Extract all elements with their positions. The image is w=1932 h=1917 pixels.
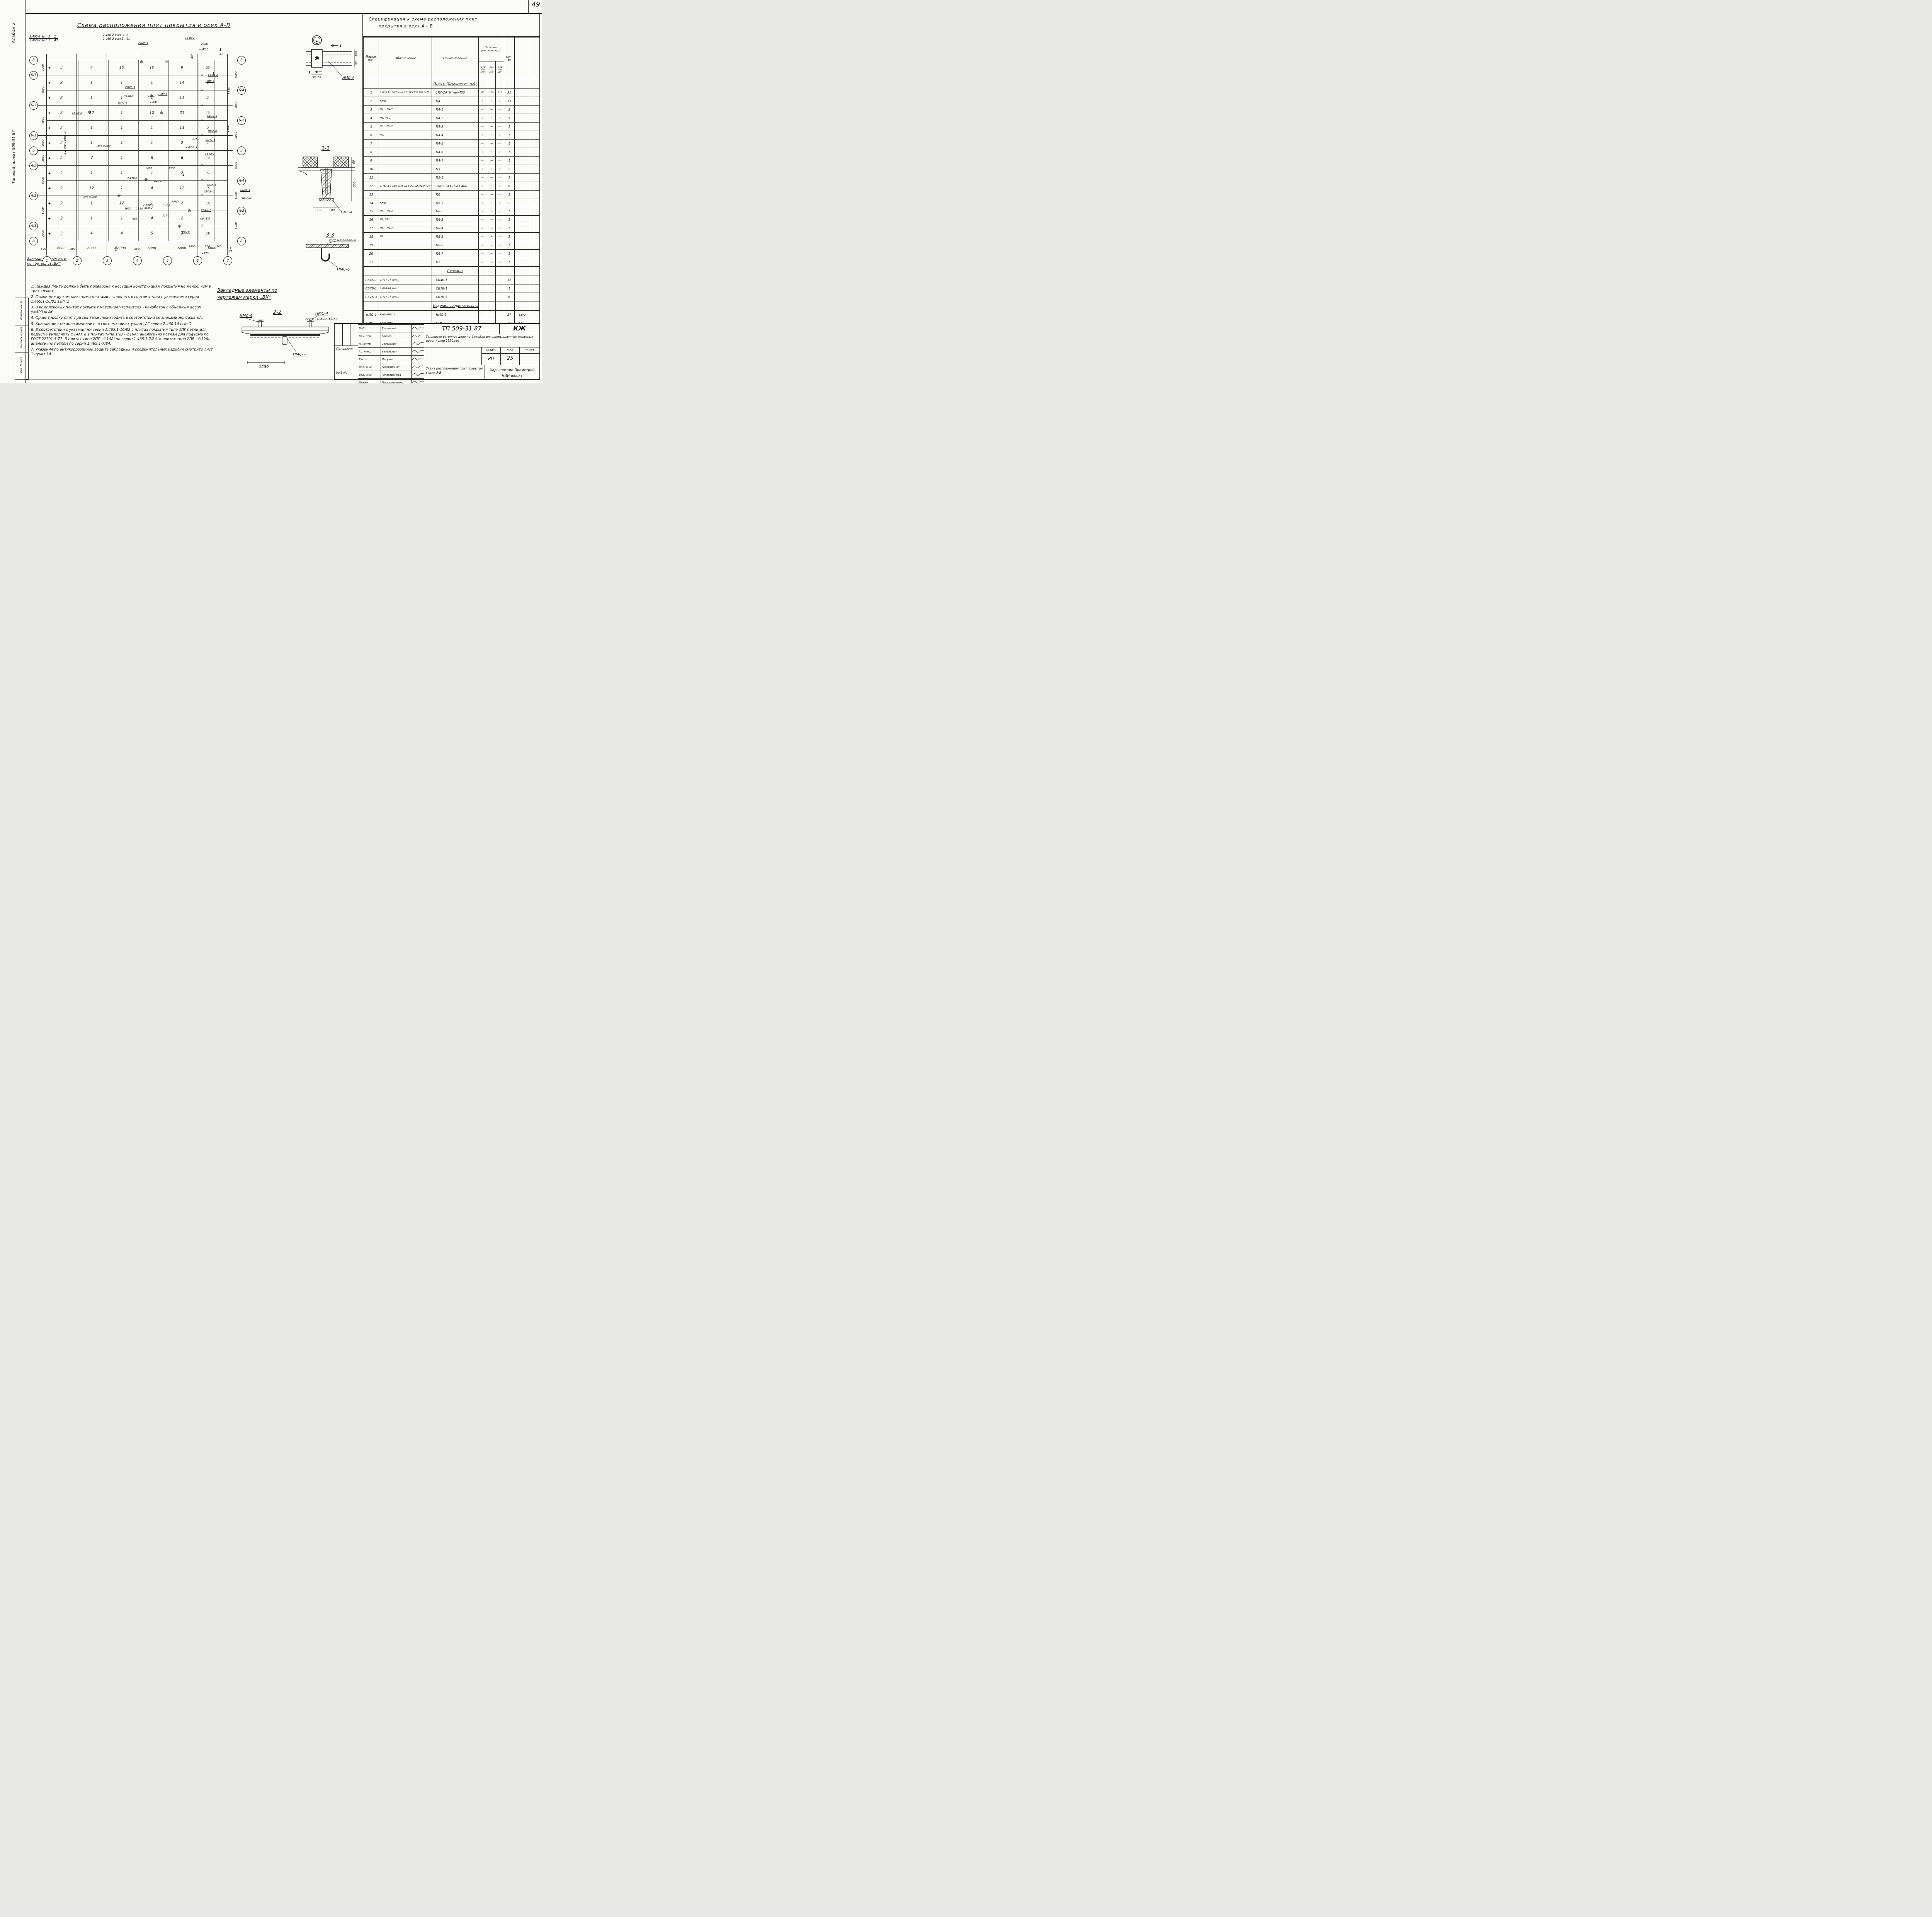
spec-mass: [514, 173, 530, 182]
spec-mark: 1: [364, 89, 379, 97]
svg-text:2-2: 2-2: [273, 309, 282, 315]
detail-3-3-drawing: 3-3 ГОСТ 14098-85-Н1-Δ8 НМС-6: [304, 230, 362, 277]
spec-qty: 1: [504, 284, 514, 293]
blueprint-sheet: 49 Альбом 2 Типовой проект 509-31.87 Вза…: [0, 0, 542, 383]
spec-spare: [530, 122, 540, 131]
spec-mark: 5: [364, 122, 379, 131]
plan-axis-hline: [38, 226, 233, 226]
plan-callout-НМС-9: НМС-9: [242, 197, 251, 200]
svg-text:100: 100: [355, 60, 358, 66]
plan-callout-2460-2: 2.460-2: [143, 203, 153, 206]
embed-plate-icon: ▫: [201, 118, 203, 122]
spec-t30: -»-: [487, 97, 496, 106]
plan-callout-1200: 1200: [168, 167, 175, 170]
plate-number: 1: [151, 171, 153, 175]
plate-number: 2: [207, 126, 209, 129]
plan-callout-НМС-4: НМС-4: [206, 138, 215, 141]
spec-mass: [514, 89, 530, 97]
plate-number: 2: [60, 201, 63, 205]
spec-mark: 6: [364, 131, 379, 139]
spec-mark: 4: [364, 114, 379, 123]
spec-mark: [364, 79, 379, 89]
axis-bubble-left: А: [29, 237, 38, 245]
spec-name: П4-5: [432, 139, 479, 148]
spec-row: 3П4 ÷ П4-7,П4-1-»--»--»-2: [364, 106, 540, 114]
plan-callout-1: 1: [219, 48, 222, 51]
plan-callout-2600: 2600: [226, 125, 230, 132]
svg-text:50: 50: [312, 76, 316, 79]
spec-header-thickness: Толщина утеплителя „δ“: [478, 37, 504, 61]
plate-number: 12: [150, 111, 155, 115]
svg-text:1: 1: [316, 38, 318, 43]
spec-t20: -»-: [478, 216, 487, 224]
sheet-title: Схема расположения плит покрытия в осях …: [424, 365, 485, 379]
stage-value: РП: [482, 354, 501, 365]
spec-t40: -»-: [496, 156, 504, 165]
plate-number: 1: [90, 126, 93, 130]
spec-spare: [530, 311, 540, 319]
plate-number: 2: [60, 156, 63, 160]
svg-text:НМС-4: НМС-4: [342, 76, 354, 80]
spec-mark: 21: [364, 258, 379, 267]
axis-bubble-bottom: 7: [223, 256, 232, 265]
spec-row: СБ4Б-11.494-24 вып.1СБ4Б-112: [364, 276, 540, 284]
plate-number: 13: [180, 126, 185, 130]
spec-t40: -»-: [496, 131, 504, 139]
roof-plan: Схема расположения плит покрытия в осях …: [27, 15, 259, 283]
plate-number: 1: [90, 141, 93, 145]
spec-t30: -»-: [487, 233, 496, 241]
signature-name: Радько: [381, 332, 412, 340]
spec-mass: [514, 241, 530, 250]
spec-mass: [514, 207, 530, 216]
spec-spare: [530, 301, 540, 311]
spec-name: СБ4Б-1: [432, 276, 479, 284]
svg-text:1: 1: [308, 71, 311, 75]
mounting-mark-icon: ◈: [48, 216, 51, 220]
plan-callout-вып2: вып 2: [145, 206, 153, 209]
spec-designation: 1.494-24 вып.1: [379, 276, 432, 284]
mounting-mark-icon: ◈: [48, 186, 51, 190]
axis-bubble-bottom: 1: [43, 256, 51, 265]
spec-t40: -»-: [496, 207, 504, 216]
spec-title-line1: Спецификация к схеме расположения плит: [369, 16, 538, 23]
spec-t30: -»-: [487, 114, 496, 123]
spec-name: 1ПВ7-3АтVт-ал-400: [432, 182, 479, 190]
axis-bubble-bottom: 4: [133, 256, 142, 265]
plan-axis-hline: [38, 196, 233, 196]
plan-right-dim: 6000: [235, 102, 238, 109]
series-text: 2.460-2 вып 2: [29, 35, 50, 38]
spec-t20: [478, 284, 487, 293]
spec-t30: -»-: [487, 122, 496, 131]
plan-callout-2700: 2700: [201, 43, 208, 46]
spec-qty: 1: [504, 190, 514, 199]
spec-mass: [514, 106, 530, 114]
plate-number: 1: [121, 141, 123, 145]
spec-t30: 100: [487, 89, 496, 97]
signature-row: ГИПТуринский: [358, 325, 424, 332]
spec-name: П4-2: [432, 114, 479, 123]
plan-axis-ext: [107, 241, 107, 255]
signature-icon: [412, 372, 424, 377]
spec-header-name: Наименование: [432, 37, 479, 79]
spec-mass: [514, 250, 530, 258]
plan-bottom-dim: 6000: [87, 247, 96, 250]
plate-number: 11: [180, 95, 185, 100]
spec-t20: -»-: [478, 97, 487, 106]
signature-name: Зеленский: [381, 348, 412, 355]
svg-text:1250: 1250: [259, 365, 269, 369]
spec-t40: -»-: [496, 114, 504, 123]
plan-callout-2150: 2150: [192, 138, 199, 141]
axis-bubble-bottom: 6: [193, 256, 202, 265]
titleblock-signatures: ГИПТуринскийНач. отдРадькоН. контрЗеленс…: [358, 324, 424, 379]
spec-qty: [504, 79, 514, 89]
plate-number: 2: [207, 96, 209, 99]
plate-number: 12: [180, 186, 185, 190]
spec-qty: 1: [504, 233, 514, 241]
spec-row: 18П7П6-5-»--»--»-1: [364, 233, 540, 241]
plate-number: 10: [119, 65, 124, 70]
spec-section-row: Стаканы: [364, 267, 540, 276]
axis-bubble-left: А/1: [29, 222, 38, 230]
spec-name: П7: [432, 258, 479, 267]
plan-axis-hline: [38, 135, 233, 136]
embed-plate-icon: ▫: [201, 163, 203, 167]
plan-callout-1430: 1430: [145, 167, 152, 170]
spec-mark: [364, 301, 379, 311]
spec-spare: [530, 131, 540, 139]
plate-number: 4: [151, 186, 153, 190]
spec-t20: [478, 311, 487, 319]
sheet-label: Лист: [501, 347, 520, 353]
spec-t20: -»-: [478, 199, 487, 207]
spec-t30: -»-: [487, 131, 496, 139]
spec-t40: 120: [496, 89, 504, 97]
spec-qty: [504, 301, 514, 311]
svg-text:100: 100: [317, 208, 323, 212]
plate-number: 2: [60, 95, 63, 100]
spec-t30: -»-: [487, 258, 496, 267]
signature-scribble: [412, 332, 424, 340]
plate-number: 3: [60, 65, 63, 70]
spec-qty: 1: [504, 241, 514, 250]
spec-t40: -»-: [496, 233, 504, 241]
mounting-mark-icon: ◈: [48, 232, 51, 235]
svg-text:НМС-4: НМС-4: [240, 314, 252, 318]
plan-left-dim: 6000: [41, 117, 44, 124]
embed-plate-icon: ▫: [201, 73, 203, 77]
detail-1-1-drawing: 1-1 60 300 100 100 НМС-4: [298, 145, 361, 215]
plate-number: 10: [150, 65, 155, 70]
sheet-value: 25: [501, 354, 520, 365]
plan-right-dim: 6000: [235, 132, 238, 139]
spec-qty: 2: [504, 199, 514, 207]
embed-plate-icon: ▫: [201, 133, 203, 137]
spec-t40: [496, 284, 504, 293]
plan-callout-НМС-4: НМС-4: [172, 200, 180, 203]
spec-spare: [530, 207, 540, 216]
spec-qty: 1: [504, 224, 514, 233]
spec-designation: П6 ÷ П6-7,: [379, 224, 432, 233]
axis-bubble-bottom: 5: [163, 256, 172, 265]
plan-left-dim: 3000: [41, 155, 44, 162]
spec-row: 9П4-7-»--»--»-1: [364, 156, 540, 165]
plan-callout-СБ4Б-1: СБ4Б-1: [240, 189, 250, 192]
spec-t30: [487, 284, 496, 293]
stage-label: Стадия: [482, 347, 501, 353]
fraction: 241: [114, 246, 118, 252]
spec-t40: -»-: [496, 241, 504, 250]
spec-header-mark: Марка, поз.: [364, 37, 379, 79]
plate-number: 1: [151, 126, 153, 130]
stakan-marker-icon: ⊕: [88, 110, 91, 115]
note-item: 1. Каждая плита должна быть приварена к …: [31, 284, 213, 294]
plan-small-dim-frac: 241: [114, 246, 118, 252]
signature-icon: [412, 380, 424, 383]
svg-text:ГОСТ 14098-85-Н1-Δ8: ГОСТ 14098-85-Н1-Δ8: [329, 239, 357, 242]
series-text: 2.460-2 вып 1 , 41: [103, 37, 130, 41]
axis-bubble-right: В: [237, 56, 246, 65]
plan-right-dim: 6000: [235, 162, 238, 169]
spec-designation: [379, 156, 432, 165]
mounting-mark-icon: ◈: [48, 126, 51, 129]
plan-axis-hline: [38, 60, 233, 60]
margin-stamp-label: Взамен инв. N: [20, 297, 23, 323]
signature-scribble: [412, 356, 424, 363]
signature-scribble: [412, 348, 424, 355]
spec-designation: [379, 301, 432, 311]
plan-left-dim: 6000: [41, 207, 44, 214]
spec-t40: [496, 301, 504, 311]
spec-row: 6П7.П4-4-»--»--»-1: [364, 131, 540, 139]
spec-mark: 20: [364, 250, 379, 258]
signature-icon: [412, 341, 424, 346]
plate-number: 2: [60, 141, 63, 145]
spec-name: 1ПГ-2АтVт-ал-400: [432, 89, 479, 97]
svg-text:1: 1: [339, 44, 342, 48]
signature-scribble: [412, 363, 424, 371]
spec-designation: П5, П5-1,: [379, 216, 432, 224]
mounting-mark-icon: ◈: [48, 171, 51, 175]
plate-number: 1: [121, 216, 123, 220]
sheets-label: Листов: [520, 347, 539, 353]
plan-callout-НМС-6: НМС-6: [181, 230, 190, 233]
spec-qty: [504, 267, 514, 276]
spec-row: СБ7Б-11.494-24 вып.1СБ7Б-11: [364, 284, 540, 293]
spec-spare: [530, 97, 540, 106]
spec-mark: 9: [364, 156, 379, 165]
note-item: 2. Стыки между комплексными плитами выпо…: [31, 295, 213, 304]
plate-number: 8: [151, 156, 153, 160]
spec-spare: [530, 139, 540, 148]
spec-t20: [478, 293, 487, 301]
spec-qty: 6: [504, 293, 514, 301]
embed-note-line1: Закладные элементы по: [217, 287, 298, 294]
embed-plate-icon: ▫: [201, 179, 203, 182]
plan-right-dim: 6000: [235, 222, 238, 229]
plan-small-dim-frac: 141: [229, 247, 232, 253]
plan-callout-365: 365: [132, 218, 137, 221]
spec-mass: [514, 233, 530, 241]
spec-name: П6-7: [432, 250, 479, 258]
spec-spare: [530, 241, 540, 250]
spec-mass: [514, 216, 530, 224]
series-text: 2.460-2 вып. 2, 2: [103, 33, 128, 37]
spec-mass: [514, 199, 530, 207]
spec-t20: -»-: [478, 139, 487, 148]
spec-t30: -»-: [487, 216, 496, 224]
spec-t40: -»-: [496, 250, 504, 258]
spec-t20: -»-: [478, 165, 487, 173]
spec-section-row: Плиты (См.примеч. п.6): [364, 79, 540, 89]
detail-node-1: 1 1 1 50 50 100 100 НМС-4: [305, 34, 362, 81]
svg-text:300: 300: [353, 181, 356, 187]
stakan-marker-icon: ⊕: [178, 224, 181, 229]
spec-designation: П7: [379, 233, 432, 241]
note-item: 4. Ориентировку плит при монтаже произво…: [31, 316, 213, 320]
spec-t20: -»-: [478, 233, 487, 241]
plan-callout-400: 400: [191, 54, 194, 59]
spec-t40: [496, 276, 504, 284]
spec-qty: 2: [504, 165, 514, 173]
plan-callout-41: 41: [219, 53, 223, 56]
plate-number: 1: [121, 186, 123, 190]
project-label: Типовой проект 509-31.87: [12, 114, 16, 184]
plan-callout-1390: 1390: [136, 207, 143, 210]
plan-callout-НМС-4: НМС-4: [154, 180, 163, 183]
detail-section-3-3: 3-3 ГОСТ 14098-85-Н1-Δ8 НМС-6: [304, 230, 362, 277]
spec-name: П5: [432, 165, 479, 173]
svg-text:100: 100: [355, 51, 358, 56]
spec-qty: 5: [504, 114, 514, 123]
plan-right-dim: 6000: [235, 192, 238, 199]
plate-number: 4: [90, 65, 93, 70]
plate-number: 2: [60, 216, 63, 220]
spec-t40: -»-: [496, 97, 504, 106]
svg-text:100: 100: [329, 208, 335, 212]
spec-t20: -»-: [478, 190, 487, 199]
spec-mass: [514, 139, 530, 148]
spec-row: 11П5-1-»--»--»-1: [364, 173, 540, 182]
spec-mark: 19: [364, 241, 379, 250]
axis-bubble-left: А/3: [29, 192, 38, 200]
spec-designation: [379, 250, 432, 258]
spec-mark: 14: [364, 199, 379, 207]
fraction: 141: [229, 247, 232, 253]
plan-left-dim: 6000: [41, 177, 44, 184]
plate-number: 14: [180, 80, 185, 85]
plate-number: 1: [151, 141, 153, 145]
doc-type: КЖ: [500, 324, 539, 334]
fraction-bottom: 41: [114, 249, 118, 252]
signature-scribble: [412, 379, 424, 383]
embed-elements-note: Закладные элементы по чертежам марки „ВК…: [217, 287, 298, 301]
spec-mark: 17: [364, 224, 379, 233]
spec-designation: П4 ÷ П4-7,: [379, 207, 432, 216]
plate-number: 12: [119, 201, 124, 205]
axis-bubble-right: А/2: [237, 207, 246, 215]
spec-mark: 12: [364, 182, 379, 190]
plan-callout-1400: 1400: [163, 204, 170, 207]
spec-row: 13П6-»--»--»-1: [364, 190, 540, 199]
spec-qty: 2: [504, 106, 514, 114]
plan-mid-note: 3 2.460-2 вып. 2: [63, 132, 66, 155]
plate-number: 2: [60, 111, 63, 115]
spec-designation: П4 ÷ П4-7,: [379, 106, 432, 114]
series-num: 1: [54, 35, 56, 38]
signature-scribble: [412, 340, 424, 347]
spec-t30: -»-: [487, 241, 496, 250]
signature-row: Гл. конс.Зеленский: [358, 348, 424, 356]
spec-title: Спецификация к схеме расположения плит п…: [363, 13, 540, 37]
spec-t40: [496, 79, 504, 89]
spec-t20: -»-: [478, 182, 487, 190]
spec-mark: СБ7Б-3: [364, 293, 379, 301]
spec-t30: -»-: [487, 207, 496, 216]
spec-mark: 13: [364, 190, 379, 199]
spec-t40: -»-: [496, 148, 504, 156]
spec-mass: [514, 276, 530, 284]
spec-t40: -»-: [496, 258, 504, 267]
plate-number: 1: [90, 80, 93, 85]
note-item: 5. Крепление стаканов выполнить в соотве…: [31, 322, 213, 327]
plan-left-dim: 3000: [41, 140, 44, 146]
signature-role: Вед. инж: [358, 371, 381, 378]
spec-t40: -»-: [496, 165, 504, 173]
signature-role: Рук. гр: [358, 356, 381, 363]
margin-stamp-label: Подпись и дата: [20, 324, 23, 351]
plan-small-dim: 4570: [202, 252, 209, 255]
axis-bubble-right: А/4: [237, 177, 246, 185]
spec-spare: [530, 199, 540, 207]
spec-mark: 18: [364, 233, 379, 241]
spec-designation: 1.494-24 вып.1: [379, 293, 432, 301]
page-number-box: 49: [528, 0, 542, 14]
spec-designation: [379, 79, 432, 89]
spec-t20: 80: [478, 89, 487, 97]
signature-name: Галактионова: [381, 371, 412, 378]
spec-spare: [530, 216, 540, 224]
plan-callout-СБ7Б-3: СБ7Б-3: [72, 111, 82, 114]
plan-small-dim: 500: [216, 245, 221, 248]
spec-spare: [530, 182, 540, 190]
mounting-mark-icon: ◈: [48, 111, 51, 114]
spec-t40: -»-: [496, 199, 504, 207]
plan-callout-СБ4В-3: СБ4В-3: [208, 73, 218, 77]
spec-mass: [514, 224, 530, 233]
plan-small-dim: 3900: [189, 245, 196, 248]
plan-series-note-line1: 2.460-2 вып. 2, 2: [103, 33, 130, 37]
plan-bottom-dim: 6000: [148, 247, 156, 250]
axis-bubble-left: В: [29, 56, 38, 65]
spec-mass: [514, 284, 530, 293]
spec-mass: [514, 79, 530, 89]
page-number: 49: [529, 0, 542, 9]
spec-qty: 1: [504, 156, 514, 165]
plan-left-dim: 3000: [41, 230, 44, 237]
plan-axis-ext: [197, 241, 197, 255]
plan-axis-hline: [38, 105, 233, 106]
spec-designation: 1.465.1-10/82 вып.0,1. ГОСТ22701.0-77÷ГО…: [379, 89, 432, 97]
plan-right-dim: 6000: [235, 72, 238, 78]
plan-callout-1650: 1650: [124, 207, 131, 210]
plate-number: 1: [121, 80, 123, 85]
spec-mark: 15: [364, 207, 379, 216]
spec-designation: 1.465.1-10/82 вып.0,1 ГОСТ22701.0-77÷ГОС…: [379, 182, 432, 190]
spec-name: НМС-4: [432, 311, 479, 319]
